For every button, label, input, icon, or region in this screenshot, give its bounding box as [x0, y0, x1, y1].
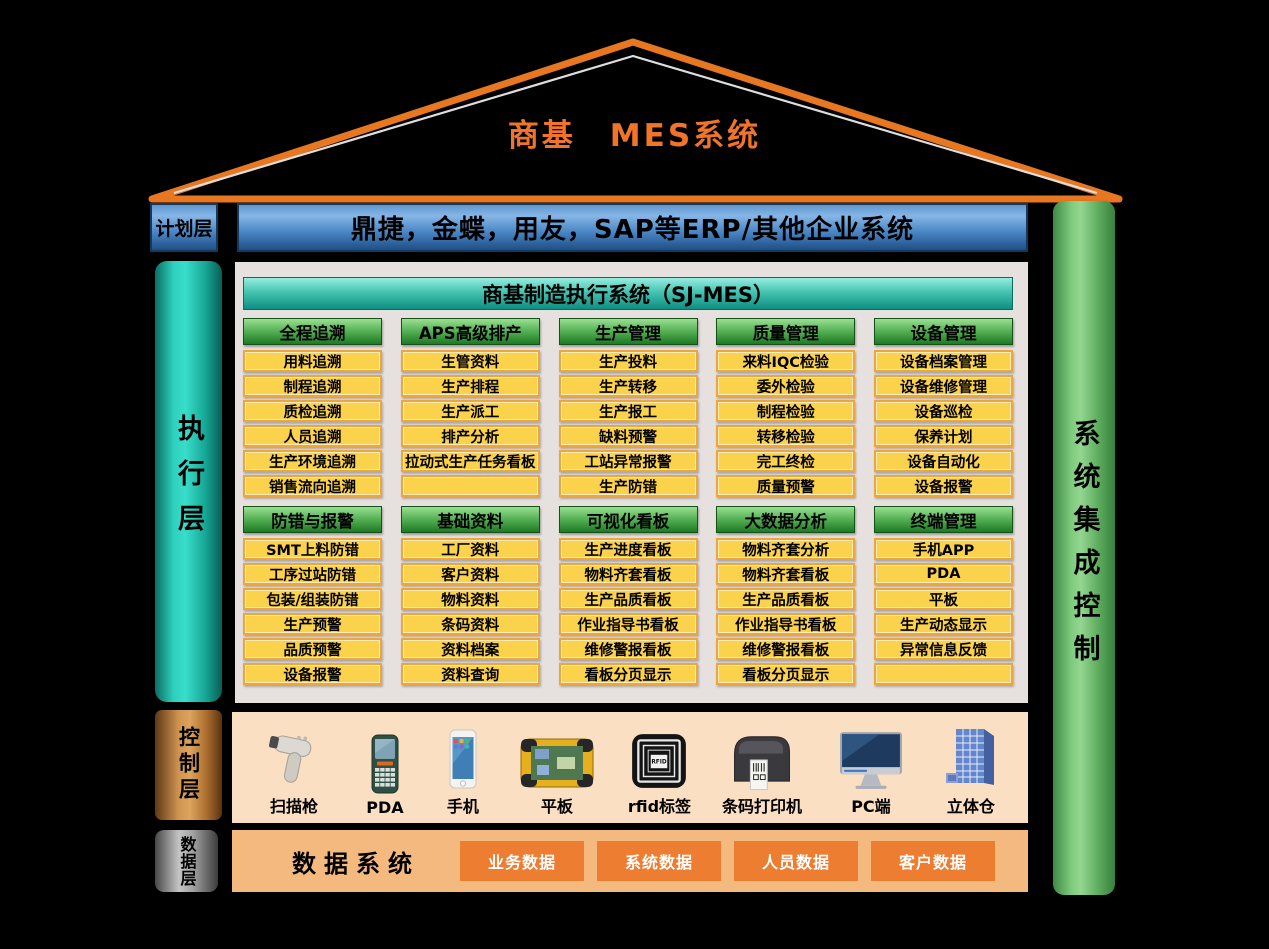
module-item: 用料追溯 — [243, 350, 382, 372]
module-item: 销售流向追溯 — [243, 475, 382, 497]
module-item: 排产分析 — [401, 425, 540, 447]
page-title: 商基 MES系统 — [0, 110, 1269, 155]
module-item: 包装/组装防错 — [243, 588, 382, 610]
module-item: 生产动态显示 — [874, 613, 1013, 635]
module-item: 拉动式生产任务看板 — [401, 450, 540, 472]
device-name: PC端 — [851, 793, 890, 817]
pda-icon — [361, 731, 409, 797]
desktop-wrap — [833, 720, 909, 792]
module-item: 手机APP — [874, 538, 1013, 560]
module-item: 生产转移 — [559, 375, 698, 397]
device-name: 立体仓 — [947, 793, 995, 817]
module-item: 生产环境追溯 — [243, 450, 382, 472]
mes-architecture-diagram: 商基 MES系统 计划层 鼎捷，金蝶，用友，SAP等ERP/其他企业系统 执行层… — [0, 0, 1269, 949]
pda-wrap — [361, 725, 409, 797]
module-header: 基础资料 — [401, 506, 540, 533]
device-cell: 条码打印机 — [722, 720, 802, 817]
module-item: 人员追溯 — [243, 425, 382, 447]
device-name: PDA — [366, 798, 403, 817]
barcode-scanner-icon — [258, 728, 330, 792]
module-item: 生产品质看板 — [559, 588, 698, 610]
device-name: 条码打印机 — [722, 793, 802, 817]
mes-column: 生产管理生产投料生产转移生产报工缺料预警工站异常报警生产防错 — [559, 318, 698, 500]
module-item: 工序过站防错 — [243, 563, 382, 585]
module-item: 条码资料 — [401, 613, 540, 635]
module-item: 设备自动化 — [874, 450, 1013, 472]
module-item: 来料IQC检验 — [716, 350, 855, 372]
system-integration-text: 系统集成控制 — [1065, 419, 1104, 677]
svg-text:RFID: RFID — [652, 760, 668, 766]
tablet-wrap — [517, 720, 597, 792]
phone-wrap — [440, 720, 486, 792]
module-item: 设备报警 — [874, 475, 1013, 497]
module-item: 品质预警 — [243, 638, 382, 660]
desktop-icon — [833, 728, 909, 792]
device-cell: 立体仓 — [940, 720, 1002, 817]
layer-label-data-text: 数据层 — [175, 836, 199, 887]
module-item: PDA — [874, 563, 1013, 585]
mes-row: 全程追溯用料追溯制程追溯质检追溯人员追溯生产环境追溯销售流向追溯APS高级排产生… — [243, 318, 1013, 500]
device-cell: 扫描枪 — [258, 720, 330, 817]
module-item: 生产进度看板 — [559, 538, 698, 560]
data-box: 业务数据 — [460, 841, 584, 881]
module-item: 完工终检 — [716, 450, 855, 472]
module-item: 制程追溯 — [243, 375, 382, 397]
module-item: 质量预警 — [716, 475, 855, 497]
erp-banner: 鼎捷，金蝶，用友，SAP等ERP/其他企业系统 — [237, 203, 1028, 252]
module-item: 缺料预警 — [559, 425, 698, 447]
mes-column: 终端管理手机APPPDA平板生产动态显示异常信息反馈 — [874, 506, 1013, 688]
module-item: 制程检验 — [716, 400, 855, 422]
layer-label-control: 控制层 — [155, 710, 222, 820]
module-header: 防错与报警 — [243, 506, 382, 533]
device-name: 手机 — [447, 793, 479, 817]
mes-column: 设备管理设备档案管理设备维修管理设备巡检保养计划设备自动化设备报警 — [874, 318, 1013, 500]
data-box: 客户数据 — [871, 841, 995, 881]
module-header: 设备管理 — [874, 318, 1013, 345]
tablet-icon — [517, 732, 597, 792]
module-item: 维修警报看板 — [716, 638, 855, 660]
mes-column: 质量管理来料IQC检验委外检验制程检验转移检验完工终检质量预警 — [716, 318, 855, 500]
mes-row: 防错与报警SMT上料防错工序过站防错包装/组装防错生产预警品质预警设备报警基础资… — [243, 506, 1013, 688]
module-item: 生产预警 — [243, 613, 382, 635]
barcode-printer-wrap — [724, 720, 800, 792]
module-item — [401, 475, 540, 497]
module-item: 看板分页显示 — [559, 663, 698, 685]
data-box: 人员数据 — [734, 841, 858, 881]
barcode-scanner-wrap — [258, 720, 330, 792]
mes-column: 可视化看板生产进度看板物料齐套看板生产品质看板作业指导书看板维修警报看板看板分页… — [559, 506, 698, 688]
mes-column: APS高级排产生管资料生产排程生产派工排产分析拉动式生产任务看板 — [401, 318, 540, 500]
layer-label-execution: 执行层 — [155, 261, 222, 702]
data-band: 数据系统 业务数据系统数据人员数据客户数据 — [232, 830, 1028, 892]
module-header: APS高级排产 — [401, 318, 540, 345]
module-item — [874, 663, 1013, 685]
module-item: 客户资料 — [401, 563, 540, 585]
phone-icon — [440, 726, 486, 792]
module-item: 生产派工 — [401, 400, 540, 422]
module-item: 作业指导书看板 — [559, 613, 698, 635]
rfid-tag-icon: RFID — [628, 730, 690, 792]
module-item: 维修警报看板 — [559, 638, 698, 660]
module-item: 生产投料 — [559, 350, 698, 372]
warehouse-wrap — [940, 720, 1002, 792]
module-item: 委外检验 — [716, 375, 855, 397]
module-item: 质检追溯 — [243, 400, 382, 422]
module-item: 物料齐套看板 — [559, 563, 698, 585]
device-cell: PC端 — [833, 720, 909, 817]
system-integration-bar: 系统集成控制 — [1053, 201, 1115, 895]
data-box: 系统数据 — [597, 841, 721, 881]
module-item: 物料齐套看板 — [716, 563, 855, 585]
rfid-tag-wrap: RFID — [628, 720, 690, 792]
module-item: 异常信息反馈 — [874, 638, 1013, 660]
module-item: 生产排程 — [401, 375, 540, 397]
module-item: 生产报工 — [559, 400, 698, 422]
data-system-title: 数据系统 — [292, 844, 420, 879]
layer-label-control-text: 控制层 — [174, 726, 204, 804]
module-item: 设备维修管理 — [874, 375, 1013, 397]
device-cell: RFIDrfid标签 — [628, 720, 691, 817]
device-cell: 平板 — [517, 720, 597, 817]
module-header: 生产管理 — [559, 318, 698, 345]
mes-column: 基础资料工厂资料客户资料物料资料条码资料资料档案资料查询 — [401, 506, 540, 688]
sjmes-header: 商基制造执行系统（SJ-MES） — [243, 277, 1013, 310]
module-item: 转移检验 — [716, 425, 855, 447]
device-cell: 手机 — [440, 720, 486, 817]
module-item: 物料齐套分析 — [716, 538, 855, 560]
module-item: 生产防错 — [559, 475, 698, 497]
layer-label-execution-text: 执行层 — [169, 414, 208, 549]
module-item: 工厂资料 — [401, 538, 540, 560]
data-boxes: 业务数据系统数据人员数据客户数据 — [460, 841, 995, 881]
mes-column: 全程追溯用料追溯制程追溯质检追溯人员追溯生产环境追溯销售流向追溯 — [243, 318, 382, 500]
module-item: 物料资料 — [401, 588, 540, 610]
module-item: 作业指导书看板 — [716, 613, 855, 635]
module-item: 资料查询 — [401, 663, 540, 685]
module-header: 全程追溯 — [243, 318, 382, 345]
module-item: 设备报警 — [243, 663, 382, 685]
warehouse-icon — [940, 724, 1002, 792]
module-item: 生管资料 — [401, 350, 540, 372]
module-header: 大数据分析 — [716, 506, 855, 533]
device-name: 平板 — [541, 793, 573, 817]
roof-outline — [0, 0, 1269, 215]
mes-column: 防错与报警SMT上料防错工序过站防错包装/组装防错生产预警品质预警设备报警 — [243, 506, 382, 688]
module-header: 可视化看板 — [559, 506, 698, 533]
module-header: 终端管理 — [874, 506, 1013, 533]
device-name: 扫描枪 — [270, 793, 318, 817]
module-item: 保养计划 — [874, 425, 1013, 447]
device-row: 扫描枪PDA手机平板RFIDrfid标签条码打印机PC端立体仓 — [232, 712, 1028, 823]
module-item: 设备档案管理 — [874, 350, 1013, 372]
module-item: 资料档案 — [401, 638, 540, 660]
barcode-printer-icon — [724, 728, 800, 792]
device-cell: PDA — [361, 725, 409, 817]
module-item: 生产品质看板 — [716, 588, 855, 610]
module-item: 工站异常报警 — [559, 450, 698, 472]
mes-column: 大数据分析物料齐套分析物料齐套看板生产品质看板作业指导书看板维修警报看板看板分页… — [716, 506, 855, 688]
layer-label-plan: 计划层 — [150, 203, 218, 252]
device-name: rfid标签 — [628, 793, 691, 817]
control-band: 扫描枪PDA手机平板RFIDrfid标签条码打印机PC端立体仓 — [232, 712, 1028, 823]
module-item: 设备巡检 — [874, 400, 1013, 422]
module-item: SMT上料防错 — [243, 538, 382, 560]
module-item: 平板 — [874, 588, 1013, 610]
module-header: 质量管理 — [716, 318, 855, 345]
layer-label-data: 数据层 — [155, 830, 218, 892]
module-item: 看板分页显示 — [716, 663, 855, 685]
